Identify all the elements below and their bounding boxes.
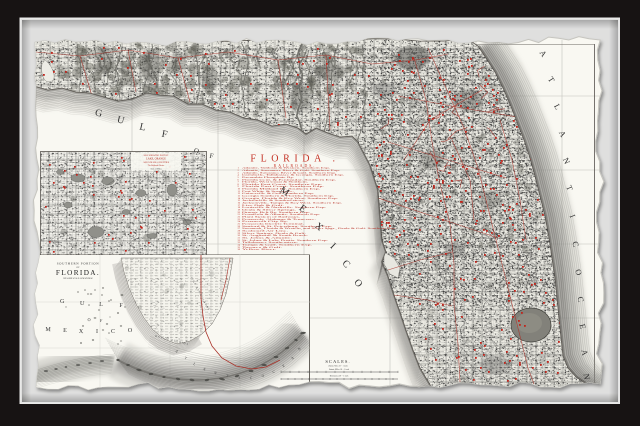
svg-text:X: X — [79, 329, 84, 335]
svg-text:Statute Miles 18 = 1 inch: Statute Miles 18 = 1 inch — [329, 369, 349, 371]
svg-text:SOUTHERN PORTION: SOUTHERN PORTION — [57, 262, 100, 266]
svg-text:E: E — [63, 328, 67, 334]
svg-text:O: O — [87, 317, 90, 322]
svg-text:C: C — [111, 329, 115, 335]
svg-text:The Railroads Herein: The Railroads Herein — [148, 165, 164, 167]
svg-text:L: L — [99, 302, 103, 308]
svg-text:SCALES.: SCALES. — [325, 359, 350, 364]
svg-text:I: I — [96, 329, 98, 335]
svg-text:LAKE, ORANGE: LAKE, ORANGE — [146, 157, 166, 160]
svg-text:M: M — [45, 327, 51, 333]
svg-text:FLORIDA.: FLORIDA. — [56, 269, 100, 277]
svg-text:(Statute Miles 18 = 1 inch): (Statute Miles 18 = 1 inch) — [328, 365, 348, 368]
svg-text:Yellow River.: Yellow River. — [242, 248, 277, 251]
svg-text:Scale of Miles: Scale of Miles — [151, 168, 162, 171]
svg-text:O: O — [128, 328, 133, 334]
svg-text:AND VOLUSIA COUNTIES: AND VOLUSIA COUNTIES — [143, 161, 170, 164]
svg-text:Kilometres 29 = 1 inch: Kilometres 29 = 1 inch — [330, 375, 348, 377]
svg-text:ON SAME SCALE AS MAIN MAP.: ON SAME SCALE AS MAIN MAP. — [63, 277, 93, 280]
